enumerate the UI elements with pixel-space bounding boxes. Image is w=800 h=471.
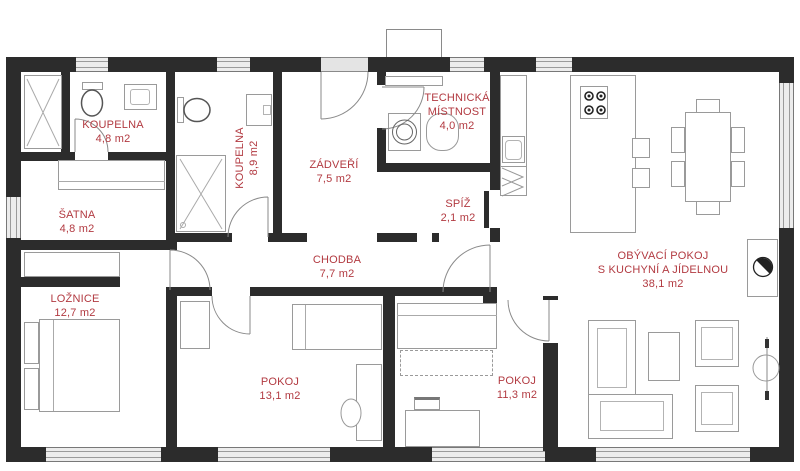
chair-icon (671, 127, 685, 153)
room-name: OBÝVACÍ POKOJ (598, 249, 729, 263)
wall-corridor-top-a (166, 233, 232, 242)
sofa-bed-icon (397, 303, 497, 349)
room-name: KOUPELNA (82, 118, 144, 132)
window-icon (450, 57, 484, 72)
bed-headboard-line (53, 320, 54, 411)
sideboard (632, 168, 650, 188)
room-name: CHODBA (313, 253, 361, 267)
shelf (385, 76, 443, 86)
dishwasher-icon (500, 166, 527, 196)
monitor-icon (414, 397, 440, 410)
room-area: 4,8 m2 (82, 132, 144, 146)
room-label-koupelna-large: KOUPELNA 8,9 m2 (233, 127, 261, 189)
room-area: 38,1 m2 (598, 277, 729, 291)
sofa-bed-extension (400, 350, 493, 376)
sofa-cushion (600, 401, 664, 431)
wall-pokoj2-east (543, 343, 558, 451)
room-area: 7,7 m2 (313, 267, 361, 281)
wall-technical-west (377, 128, 386, 163)
wall-kitchen-west-upper (490, 72, 500, 190)
window-icon (218, 447, 330, 462)
toilet-icon (82, 82, 103, 90)
shower-icon (176, 155, 226, 232)
room-label-spiz: SPÍŽ 2,1 m2 (441, 197, 476, 225)
room-area: 8,9 m2 (247, 127, 261, 189)
wall-kitchen-west-lower (490, 228, 500, 242)
window-icon (596, 447, 750, 462)
sideboard (632, 138, 650, 158)
pantry-door-leaf (484, 191, 489, 228)
room-label-satna: ŠATNA 4,8 m2 (59, 208, 96, 236)
desk-icon (405, 410, 480, 447)
bed-pillow-line (305, 305, 306, 349)
room-label-obyvaci-pokoj: OBÝVACÍ POKOJ S KUCHYNÍ A JÍDELNOU 38,1 … (598, 249, 729, 291)
room-area: 4,8 m2 (59, 222, 96, 236)
wall-bathroom2-east (273, 72, 282, 242)
window-icon (779, 156, 794, 228)
sofa-cushion (597, 328, 627, 388)
chair-icon (731, 161, 745, 187)
room-area: 12,7 m2 (50, 306, 99, 320)
room-name: MÍSTNOST (424, 105, 489, 119)
room-name: POKOJ (497, 374, 537, 388)
toilet-icon (177, 97, 184, 123)
room-name: ZÁDVEŘÍ (309, 158, 358, 172)
shower-icon (24, 75, 62, 149)
chair-icon (696, 99, 720, 113)
room-label-loznice: LOŽNICE 12,7 m2 (50, 292, 99, 320)
window-icon (6, 197, 21, 238)
room-label-technicka: TECHNICKÁ MÍSTNOST 4,0 m2 (424, 91, 489, 133)
wall-shower-corner (61, 72, 70, 152)
window-icon (46, 447, 161, 462)
wardrobe-rod (58, 181, 165, 182)
wall-corridor-top-b (268, 233, 307, 242)
stove-icon (580, 86, 608, 119)
kitchen-sink-basin (505, 140, 522, 160)
wall-corridor-bottom-a (166, 287, 212, 296)
chair-icon (696, 201, 720, 215)
room-area: 7,5 m2 (309, 172, 358, 186)
wall-bathroom2-west (166, 72, 175, 242)
wall-corridor-top-c (377, 233, 417, 242)
wall-loznice-north (21, 277, 120, 287)
room-label-pokoj-2: POKOJ 11,3 m2 (497, 374, 537, 402)
room-name: ŠATNA (59, 208, 96, 222)
wall-pokoj2-east-stub (543, 296, 558, 300)
bed-icon (39, 319, 120, 412)
room-label-zadveri: ZÁDVEŘÍ 7,5 m2 (309, 158, 358, 186)
room-name: SPÍŽ (441, 197, 476, 211)
room-name: KOUPELNA (233, 127, 247, 189)
room-name: S KUCHYNÍ A JÍDELNOU (598, 263, 729, 277)
sofa-back-line (397, 315, 497, 316)
armchair-seat (701, 392, 733, 425)
entrance-door (321, 57, 368, 72)
room-name: LOŽNICE (50, 292, 99, 306)
wardrobe-icon (180, 301, 210, 349)
wall-pokoj-divider (383, 296, 395, 451)
room-area: 2,1 m2 (441, 211, 476, 225)
room-area: 4,0 m2 (424, 119, 489, 133)
window-icon (217, 57, 250, 72)
fireplace-icon (747, 239, 778, 297)
wall-corridor-bottom-b (250, 287, 497, 296)
sink-tap (263, 105, 271, 115)
wall-satna-bottom (21, 240, 166, 250)
room-area: 11,3 m2 (497, 388, 537, 402)
nightstand (24, 368, 39, 410)
wall-corridor-top-stub (432, 233, 439, 242)
wall-exterior-left (6, 57, 21, 462)
floor-plan: KOUPELNA 4,8 m2 KOUPELNA 8,9 m2 ZÁDVEŘÍ … (0, 0, 800, 471)
window-icon (779, 83, 794, 156)
terrace-door-handle-icon (753, 337, 779, 400)
window-icon (536, 57, 572, 72)
dining-table-icon (685, 112, 731, 202)
room-name: POKOJ (259, 375, 300, 389)
room-label-pokoj-1: POKOJ 13,1 m2 (259, 375, 300, 403)
wall-technical-bottom (377, 163, 497, 172)
wall-loznice-door-stub (166, 242, 177, 250)
wardrobe-icon (58, 160, 165, 190)
chair-icon (671, 161, 685, 187)
wall-loznice-east (166, 296, 177, 451)
room-label-chodba: CHODBA 7,7 m2 (313, 253, 361, 281)
sink-basin (130, 89, 150, 105)
washing-machine-icon (388, 113, 421, 151)
window-icon (432, 447, 545, 462)
room-label-koupelna-small: KOUPELNA 4,8 m2 (82, 118, 144, 146)
chimney-icon (386, 29, 442, 60)
window-icon (76, 57, 108, 72)
wall-exterior-top (6, 57, 794, 72)
armchair-seat (701, 327, 733, 360)
nightstand (24, 322, 39, 364)
room-area: 13,1 m2 (259, 389, 300, 403)
chair-icon (731, 127, 745, 153)
coffee-table-icon (648, 332, 680, 381)
room-name: TECHNICKÁ (424, 91, 489, 105)
wardrobe-icon (24, 252, 120, 277)
wall-corridor-end-stub (483, 287, 497, 303)
desk-icon (356, 364, 382, 441)
